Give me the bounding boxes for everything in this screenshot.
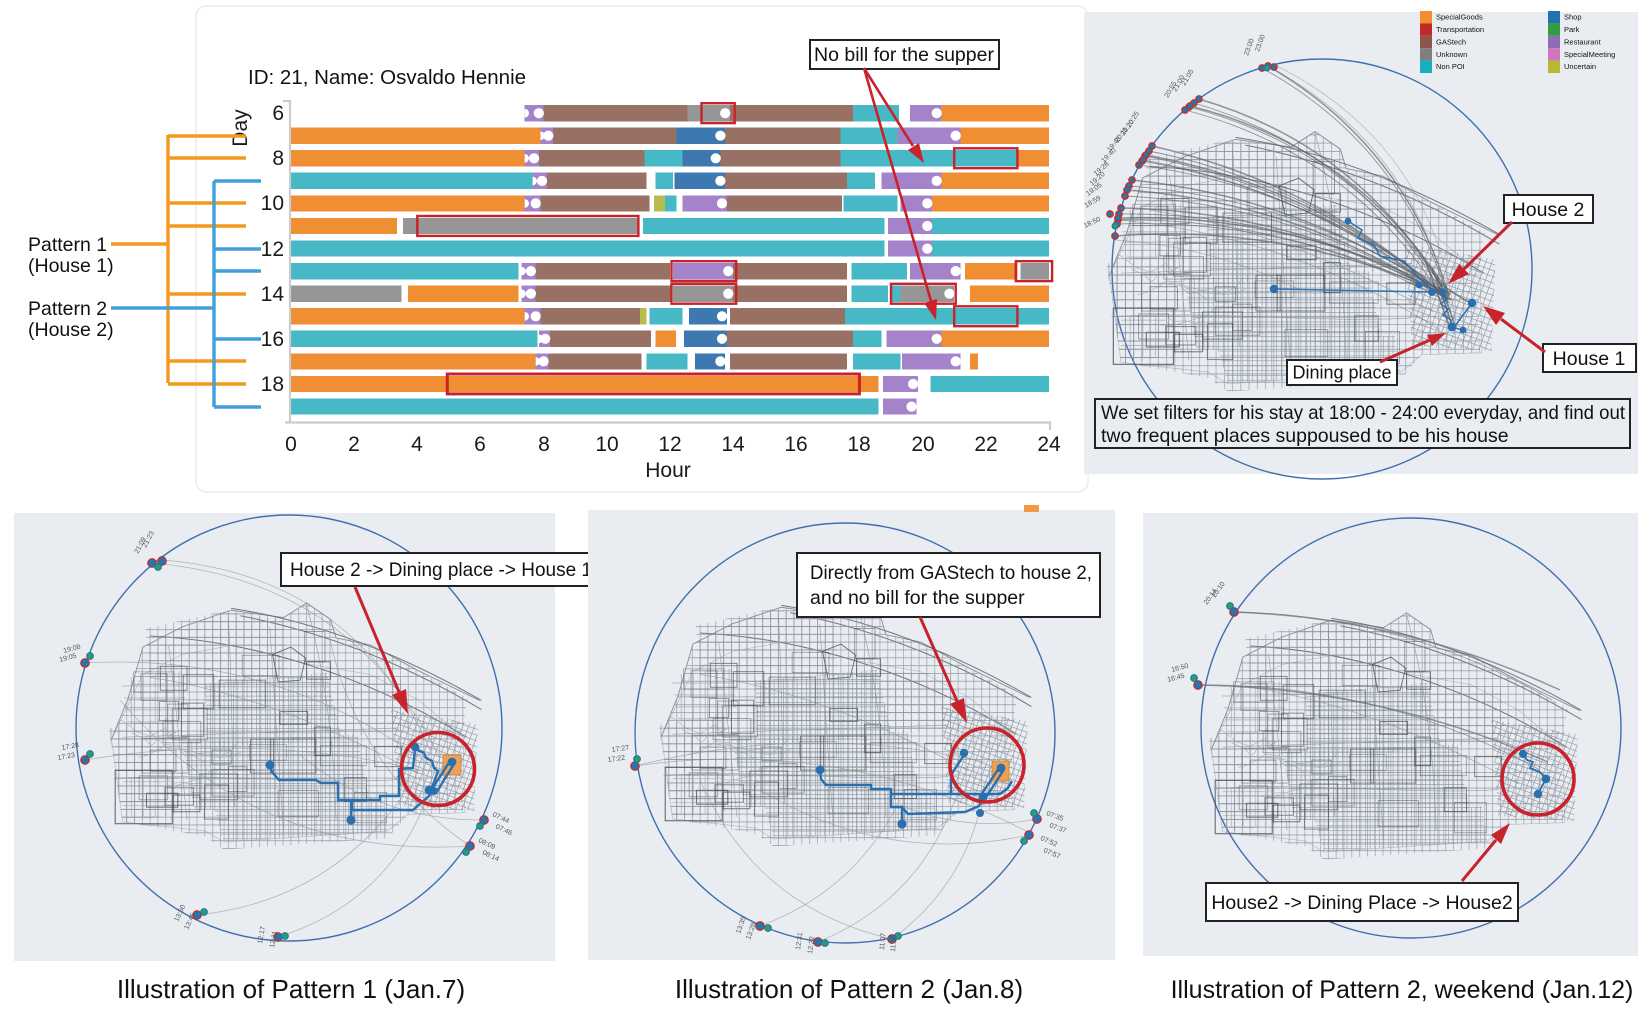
svg-text:Pattern 1: Pattern 1 [28,234,107,256]
svg-text:House 2: House 2 [1512,199,1585,221]
svg-text:0: 0 [285,433,297,456]
svg-text:Uncertain: Uncertain [1564,62,1596,71]
svg-text:Illustration of Pattern 1 (Jan: Illustration of Pattern 1 (Jan.7) [117,974,465,1004]
svg-text:Park: Park [1564,25,1580,34]
svg-text:House 2 -> Dining place -> Hou: House 2 -> Dining place -> House 1 [290,559,592,581]
svg-text:18: 18 [261,373,284,396]
svg-text:16: 16 [784,433,807,456]
svg-text:Illustration of Pattern 2 (Jan: Illustration of Pattern 2 (Jan.8) [675,974,1023,1004]
svg-text:11:07: 11:07 [879,933,887,951]
svg-text:16: 16 [261,328,284,351]
svg-text:Dining place: Dining place [1292,363,1391,383]
svg-text:4: 4 [411,433,423,456]
svg-text:Hour: Hour [645,459,691,482]
svg-text:20: 20 [911,433,934,456]
svg-text:GAStech: GAStech [1436,37,1466,46]
svg-text:and no bill for the supper: and no bill for the supper [810,587,1025,609]
svg-text:10: 10 [595,433,618,456]
svg-text:Unknown: Unknown [1436,50,1467,59]
svg-text:Restaurant: Restaurant [1564,37,1602,46]
svg-text:two frequent places suppoused: two frequent places suppoused to be his … [1101,425,1509,447]
svg-text:(House 2): (House 2) [28,319,114,341]
svg-text:14: 14 [261,283,285,306]
svg-text:House2 -> Dining Place -> Hous: House2 -> Dining Place -> House2 [1211,892,1512,914]
svg-text:18: 18 [847,433,870,456]
svg-text:House 1: House 1 [1553,348,1626,370]
svg-text:Transportation: Transportation [1436,25,1484,34]
svg-text:Day: Day [229,109,252,147]
svg-text:Non POI: Non POI [1436,62,1465,71]
svg-text:We set filters for his stay at: We set filters for his stay at 18:00 - 2… [1101,402,1626,424]
svg-text:8: 8 [538,433,550,456]
svg-text:(House 1): (House 1) [28,255,114,277]
svg-text:6: 6 [272,102,284,125]
svg-text:24: 24 [1037,433,1061,456]
svg-text:12: 12 [658,433,681,456]
svg-text:6: 6 [474,433,486,456]
svg-text:12: 12 [261,238,284,261]
svg-text:Pattern 2: Pattern 2 [28,298,107,320]
svg-text:8: 8 [272,147,284,170]
svg-text:11:10: 11:10 [890,935,898,953]
svg-text:No bill for the supper: No bill for the supper [814,44,994,66]
svg-text:14: 14 [721,433,745,456]
svg-text:10: 10 [261,192,284,215]
svg-text:SpecialGoods: SpecialGoods [1436,13,1483,22]
svg-text:2: 2 [348,433,360,456]
svg-text:ID: 21, Name: Osvaldo Hennie: ID: 21, Name: Osvaldo Hennie [248,66,526,89]
svg-text:SpecialMeeting: SpecialMeeting [1564,50,1615,59]
svg-text:Shop: Shop [1564,13,1582,22]
svg-text:22: 22 [974,433,997,456]
svg-text:Directly from GAStech to house: Directly from GAStech to house 2, [810,562,1092,584]
svg-text:Illustration of Pattern 2, wee: Illustration of Pattern 2, weekend (Jan.… [1171,976,1634,1004]
